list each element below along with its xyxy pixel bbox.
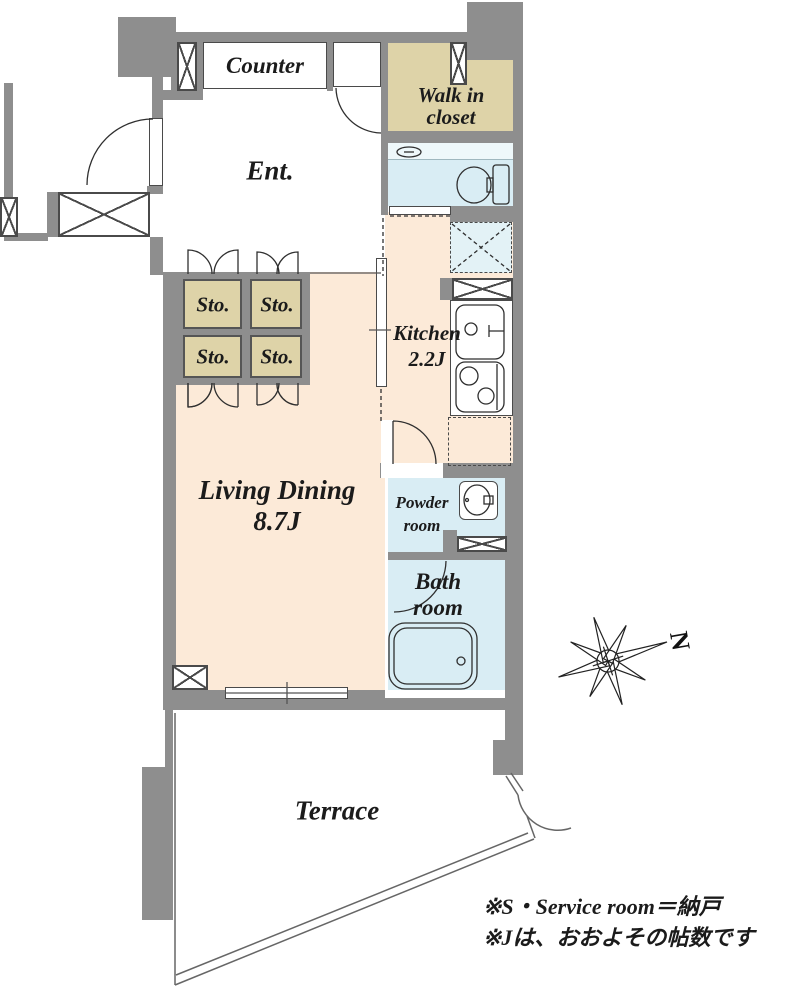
powder-door-opening — [381, 463, 443, 478]
refrigerator-space — [448, 417, 511, 466]
floor-plan: Counter Ent. Walk in closet Sto. Sto. St… — [0, 0, 789, 1000]
entrance-label: Ent. — [246, 156, 293, 187]
shaft-box-living — [172, 665, 208, 690]
entry-alcove — [333, 42, 381, 87]
legend-line-2: ※Jは、おおよその帖数です — [483, 922, 754, 953]
compass-north-label: N — [663, 629, 696, 653]
kitchen-storage-box — [452, 278, 513, 300]
bath-room-label: Bath room — [413, 569, 463, 621]
powder-room-label: Powder room — [396, 491, 449, 537]
legend-line-1: ※S・Service room＝納戸 — [483, 891, 754, 922]
meter-box-small — [0, 197, 18, 237]
pipe-space-box — [450, 42, 467, 85]
storage-label-3: Sto. — [196, 345, 229, 370]
wall-segment — [165, 710, 173, 767]
wall-segment — [118, 17, 176, 77]
storage-label-4: Sto. — [260, 345, 293, 370]
wall-segment — [493, 740, 507, 775]
pillar-shaft-box — [177, 42, 197, 91]
living-dining-label: Living Dining 8.7J — [199, 475, 356, 537]
wash-basin-cabinet — [459, 481, 498, 520]
legend-notes: ※S・Service room＝納戸 ※Jは、おおよその帖数です — [483, 891, 754, 953]
entrance-door-opening — [149, 118, 163, 186]
counter-label: Counter — [226, 53, 304, 79]
wall-segment — [381, 42, 388, 215]
wall-segment — [505, 470, 523, 775]
wall-segment — [383, 698, 505, 710]
wall-segment — [381, 131, 523, 143]
toilet-floor — [388, 160, 513, 206]
toilet-door-opening — [389, 206, 451, 215]
entrance-door-arc — [87, 119, 153, 185]
washer-space-box — [457, 536, 507, 552]
kitchen-door-opening — [381, 420, 393, 467]
wall-segment — [513, 40, 523, 470]
kitchen-label: Kitchen 2.2J — [393, 320, 461, 372]
wall-segment — [150, 237, 163, 275]
compass-rose — [559, 617, 668, 704]
walk-in-closet-label: Walk in closet — [418, 84, 485, 128]
wall-segment — [142, 767, 173, 920]
kitchen-partition-hatch — [376, 258, 387, 387]
storage-label-2: Sto. — [260, 293, 293, 318]
wall-segment — [152, 90, 203, 100]
meter-box — [58, 192, 150, 237]
terrace-label: Terrace — [295, 796, 379, 827]
storage-label-1: Sto. — [196, 293, 229, 318]
wall-segment — [450, 206, 513, 222]
wall-segment — [388, 552, 505, 560]
wall-segment — [163, 272, 176, 690]
wall-segment — [440, 278, 452, 300]
toilet-counter-strip — [388, 143, 513, 160]
terrace-window — [225, 687, 348, 699]
hatched-service-space — [450, 222, 512, 273]
